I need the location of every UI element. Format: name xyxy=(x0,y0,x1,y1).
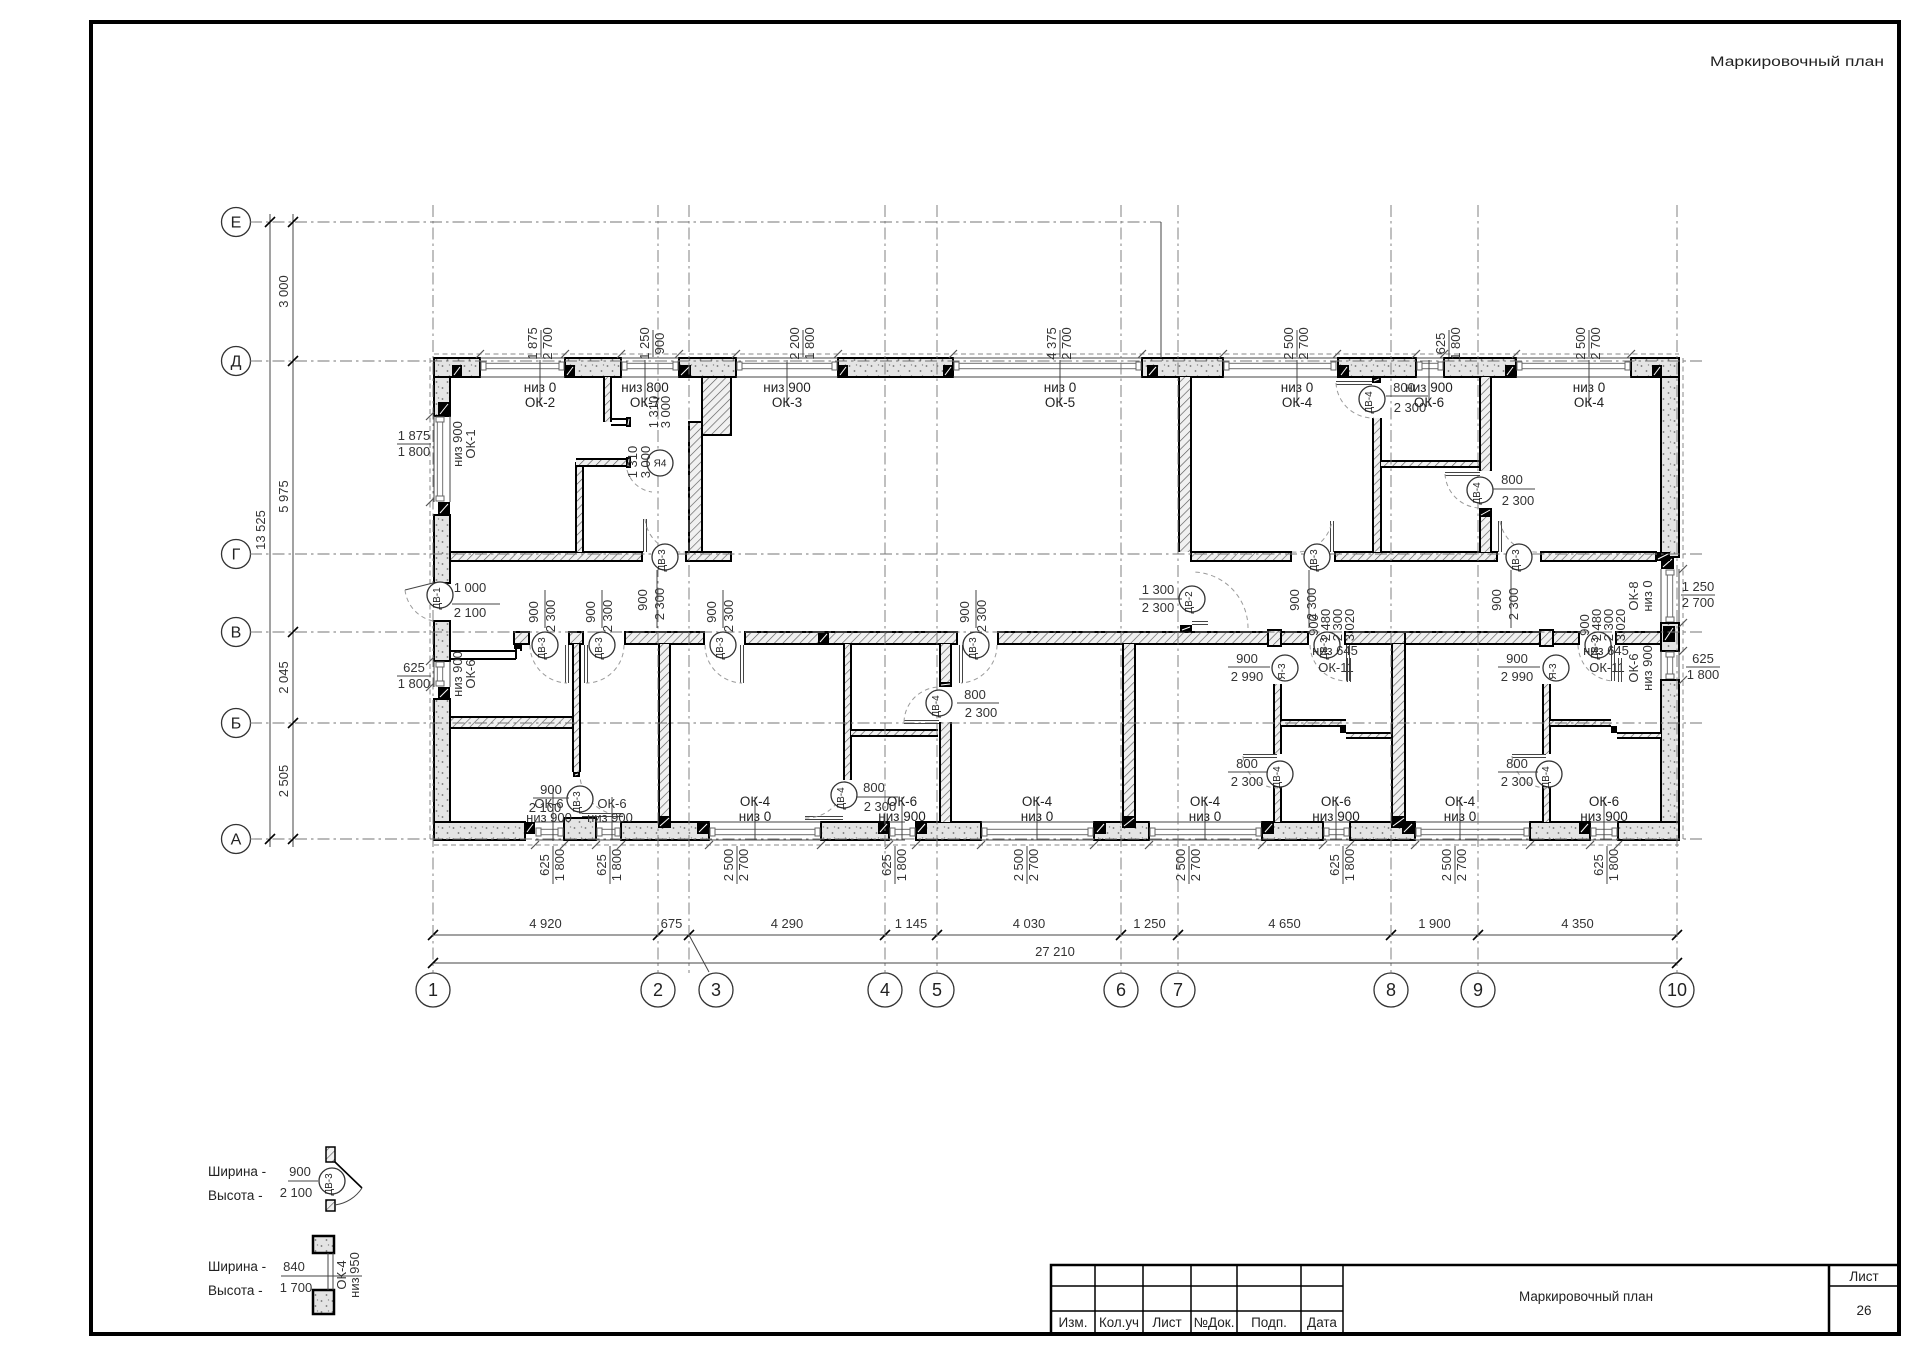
svg-text:ДВ-4: ДВ-4 xyxy=(836,787,847,810)
svg-text:900: 900 xyxy=(540,782,562,797)
svg-text:4 290: 4 290 xyxy=(771,916,804,931)
svg-text:Ширина -: Ширина - xyxy=(208,1164,266,1179)
svg-text:ОК-4: ОК-4 xyxy=(1574,395,1605,410)
svg-text:ДВ-3: ДВ-3 xyxy=(968,637,979,660)
svg-text:1 800: 1 800 xyxy=(1606,849,1621,882)
svg-text:низ 900: низ 900 xyxy=(1405,380,1452,395)
svg-text:ОК-5: ОК-5 xyxy=(1045,395,1075,410)
svg-text:Д: Д xyxy=(231,354,242,371)
svg-text:низ 900: низ 900 xyxy=(1640,645,1655,691)
svg-text:840: 840 xyxy=(283,1259,305,1274)
svg-text:2 500: 2 500 xyxy=(1573,327,1588,360)
svg-text:800: 800 xyxy=(964,687,986,702)
svg-text:2 300: 2 300 xyxy=(1231,774,1264,789)
svg-text:625: 625 xyxy=(1591,854,1606,876)
svg-text:низ 0: низ 0 xyxy=(1640,580,1655,611)
svg-text:625: 625 xyxy=(537,854,552,876)
svg-text:800: 800 xyxy=(863,780,885,795)
svg-text:800: 800 xyxy=(1236,756,1258,771)
svg-text:2 700: 2 700 xyxy=(736,849,751,882)
svg-text:№Док.: №Док. xyxy=(1194,1315,1235,1330)
svg-text:2 500: 2 500 xyxy=(1439,849,1454,882)
svg-text:900: 900 xyxy=(526,601,541,623)
svg-text:2 700: 2 700 xyxy=(1026,849,1041,882)
svg-text:13 525: 13 525 xyxy=(253,510,268,550)
svg-text:В: В xyxy=(231,625,242,642)
svg-text:2 500: 2 500 xyxy=(1011,849,1026,882)
svg-text:2 500: 2 500 xyxy=(721,849,736,882)
svg-text:низ 0: низ 0 xyxy=(524,380,556,395)
svg-text:26: 26 xyxy=(1856,1303,1871,1318)
svg-text:625: 625 xyxy=(594,854,609,876)
svg-text:Ширина -: Ширина - xyxy=(208,1259,266,1274)
svg-text:2 300: 2 300 xyxy=(1142,600,1175,615)
svg-text:1 000: 1 000 xyxy=(454,580,487,595)
svg-text:Высота -: Высота - xyxy=(208,1188,263,1203)
svg-text:ОК-6: ОК-6 xyxy=(1589,794,1619,809)
svg-text:ОК-4: ОК-4 xyxy=(1282,395,1313,410)
svg-text:5 975: 5 975 xyxy=(276,480,291,513)
svg-text:1: 1 xyxy=(428,980,438,1000)
svg-text:Кол.уч: Кол.уч xyxy=(1099,1315,1139,1330)
svg-text:ДВ-3: ДВ-3 xyxy=(1309,549,1320,572)
svg-text:ОК-8: ОК-8 xyxy=(1626,581,1641,610)
svg-text:2 100: 2 100 xyxy=(454,605,487,620)
svg-text:900: 900 xyxy=(1287,589,1302,611)
svg-text:4 375: 4 375 xyxy=(1044,327,1059,360)
svg-text:низ 0: низ 0 xyxy=(1573,380,1605,395)
svg-text:ОК-6: ОК-6 xyxy=(1414,395,1444,410)
svg-text:2 990: 2 990 xyxy=(1231,669,1264,684)
svg-text:ДВ-4: ДВ-4 xyxy=(1472,482,1483,505)
svg-text:ОК-1: ОК-1 xyxy=(463,429,478,458)
svg-text:Маркировочный план: Маркировочный план xyxy=(1710,54,1884,69)
svg-text:625: 625 xyxy=(1692,651,1714,666)
svg-text:ОК-4: ОК-4 xyxy=(740,794,771,809)
svg-text:1 800: 1 800 xyxy=(398,444,431,459)
svg-text:3 000: 3 000 xyxy=(658,396,673,429)
svg-text:1 145: 1 145 xyxy=(895,916,928,931)
svg-text:ОК-11: ОК-11 xyxy=(1589,660,1625,675)
svg-text:Лист: Лист xyxy=(1849,1269,1878,1284)
svg-text:ОК-6: ОК-6 xyxy=(1321,794,1351,809)
svg-text:10: 10 xyxy=(1667,980,1687,1000)
svg-text:ДВ-3: ДВ-3 xyxy=(594,637,605,660)
svg-text:низ 0: низ 0 xyxy=(1281,380,1313,395)
svg-text:8: 8 xyxy=(1386,980,1396,1000)
svg-text:1 800: 1 800 xyxy=(1687,667,1720,682)
svg-text:ДВ-4: ДВ-4 xyxy=(1272,766,1283,789)
svg-text:низ 900: низ 900 xyxy=(1312,809,1359,824)
svg-text:3: 3 xyxy=(711,980,721,1000)
svg-text:ОК-6: ОК-6 xyxy=(463,659,478,688)
svg-text:ОК-2: ОК-2 xyxy=(525,395,555,410)
svg-text:2 700: 2 700 xyxy=(1188,849,1203,882)
svg-text:1 800: 1 800 xyxy=(802,327,817,360)
svg-text:2 505: 2 505 xyxy=(276,765,291,798)
svg-text:1 800: 1 800 xyxy=(1342,849,1357,882)
svg-text:2 300: 2 300 xyxy=(652,588,667,621)
svg-text:2 700: 2 700 xyxy=(1296,327,1311,360)
svg-text:ОК-4: ОК-4 xyxy=(1445,794,1476,809)
svg-text:3 000: 3 000 xyxy=(276,275,291,308)
svg-text:2 100: 2 100 xyxy=(280,1185,313,1200)
svg-text:А: А xyxy=(231,832,242,849)
svg-text:ДВ-3: ДВ-3 xyxy=(715,637,726,660)
svg-text:2 700: 2 700 xyxy=(540,327,555,360)
svg-text:4 650: 4 650 xyxy=(1268,916,1301,931)
svg-text:ОК-4: ОК-4 xyxy=(1022,794,1053,809)
svg-text:625: 625 xyxy=(879,854,894,876)
svg-text:1 300: 1 300 xyxy=(1142,582,1175,597)
svg-text:800: 800 xyxy=(1501,472,1523,487)
svg-text:2 300: 2 300 xyxy=(965,705,998,720)
svg-text:625: 625 xyxy=(403,660,425,675)
svg-text:625: 625 xyxy=(1433,333,1448,355)
svg-text:900: 900 xyxy=(289,1164,311,1179)
svg-text:2 300: 2 300 xyxy=(1502,493,1535,508)
svg-text:2 300: 2 300 xyxy=(1501,774,1534,789)
svg-text:2 300: 2 300 xyxy=(1506,588,1521,621)
svg-text:1 250: 1 250 xyxy=(1133,916,1166,931)
svg-text:675: 675 xyxy=(661,916,683,931)
svg-text:1 800: 1 800 xyxy=(609,849,624,882)
svg-text:низ 0: низ 0 xyxy=(1444,809,1476,824)
svg-text:ДВ-4: ДВ-4 xyxy=(1541,766,1552,789)
svg-text:2: 2 xyxy=(653,980,663,1000)
svg-text:низ 0: низ 0 xyxy=(1021,809,1053,824)
svg-text:4 350: 4 350 xyxy=(1561,916,1594,931)
svg-text:2 700: 2 700 xyxy=(1588,327,1603,360)
svg-text:Лист: Лист xyxy=(1152,1315,1181,1330)
svg-text:низ 0: низ 0 xyxy=(1044,380,1076,395)
svg-text:3 020: 3 020 xyxy=(1613,609,1628,642)
svg-text:низ 645: низ 645 xyxy=(1312,643,1358,658)
svg-text:1 875: 1 875 xyxy=(398,428,431,443)
svg-text:3 000: 3 000 xyxy=(638,446,653,479)
svg-text:900: 900 xyxy=(583,601,598,623)
svg-text:низ 900: низ 900 xyxy=(1580,809,1627,824)
svg-text:ОК-7: ОК-7 xyxy=(630,395,660,410)
svg-text:низ 0: низ 0 xyxy=(1189,809,1221,824)
svg-text:низ 0: низ 0 xyxy=(739,809,771,824)
svg-text:Высота -: Высота - xyxy=(208,1283,263,1298)
svg-text:2 700: 2 700 xyxy=(1454,849,1469,882)
svg-text:5: 5 xyxy=(932,980,942,1000)
svg-text:2 500: 2 500 xyxy=(1281,327,1296,360)
svg-text:9: 9 xyxy=(1473,980,1483,1000)
svg-text:900: 900 xyxy=(652,333,667,355)
svg-text:625: 625 xyxy=(1327,854,1342,876)
svg-text:900: 900 xyxy=(635,589,650,611)
svg-text:Б: Б xyxy=(231,716,242,733)
svg-text:900: 900 xyxy=(1236,651,1258,666)
svg-text:1 800: 1 800 xyxy=(1448,327,1463,360)
svg-text:27 210: 27 210 xyxy=(1035,944,1075,959)
svg-text:4 030: 4 030 xyxy=(1013,916,1046,931)
svg-text:низ 900: низ 900 xyxy=(878,809,925,824)
svg-text:ДВ-3: ДВ-3 xyxy=(537,637,548,660)
svg-text:ОК-6: ОК-6 xyxy=(887,794,917,809)
svg-text:1 250: 1 250 xyxy=(637,327,652,360)
svg-text:7: 7 xyxy=(1173,980,1183,1000)
svg-text:Я-3: Я-3 xyxy=(1277,663,1288,680)
svg-text:1 800: 1 800 xyxy=(398,676,431,691)
svg-text:ДВ-3: ДВ-3 xyxy=(1511,549,1522,572)
svg-text:Я-3: Я-3 xyxy=(1548,663,1559,680)
svg-text:ДВ-4: ДВ-4 xyxy=(931,695,942,718)
svg-text:ДВ-3: ДВ-3 xyxy=(324,1173,335,1196)
svg-text:1 800: 1 800 xyxy=(894,849,909,882)
svg-text:Изм.: Изм. xyxy=(1059,1315,1088,1330)
svg-text:ОК-3: ОК-3 xyxy=(772,395,802,410)
svg-text:2 700: 2 700 xyxy=(1682,595,1715,610)
svg-text:4: 4 xyxy=(880,980,890,1000)
svg-text:1 250: 1 250 xyxy=(1682,579,1715,594)
svg-text:низ 800: низ 800 xyxy=(621,380,668,395)
svg-text:Дата: Дата xyxy=(1307,1315,1337,1330)
svg-text:ДВ-2: ДВ-2 xyxy=(1184,591,1195,614)
svg-text:900: 900 xyxy=(704,601,719,623)
svg-text:Подп.: Подп. xyxy=(1251,1315,1287,1330)
svg-text:низ 900: низ 900 xyxy=(763,380,810,395)
svg-text:900: 900 xyxy=(1489,589,1504,611)
svg-text:1 900: 1 900 xyxy=(1418,916,1451,931)
svg-text:Маркировочный план: Маркировочный план xyxy=(1519,1289,1653,1304)
svg-text:900: 900 xyxy=(957,601,972,623)
svg-text:800: 800 xyxy=(1506,756,1528,771)
svg-text:ДВ-3: ДВ-3 xyxy=(657,549,668,572)
svg-text:Г: Г xyxy=(232,547,241,564)
svg-text:2 990: 2 990 xyxy=(1501,669,1534,684)
svg-text:2 045: 2 045 xyxy=(276,661,291,694)
svg-text:ДВ-1: ДВ-1 xyxy=(432,587,443,610)
svg-text:ОК-11: ОК-11 xyxy=(1318,660,1354,675)
svg-text:1 800: 1 800 xyxy=(552,849,567,882)
svg-text:низ 645: низ 645 xyxy=(1583,643,1629,658)
svg-text:ДВ-3: ДВ-3 xyxy=(572,791,583,814)
svg-text:ОК-6: ОК-6 xyxy=(1626,653,1641,682)
svg-text:4 920: 4 920 xyxy=(529,916,562,931)
svg-text:1 875: 1 875 xyxy=(525,327,540,360)
svg-text:ОК-4: ОК-4 xyxy=(1190,794,1221,809)
svg-text:низ 950: низ 950 xyxy=(347,1252,362,1298)
svg-text:3 020: 3 020 xyxy=(1342,609,1357,642)
svg-text:низ 900: низ 900 xyxy=(587,810,633,825)
svg-text:900: 900 xyxy=(1506,651,1528,666)
svg-text:2 200: 2 200 xyxy=(787,327,802,360)
svg-text:Я4: Я4 xyxy=(654,459,667,470)
svg-text:1 700: 1 700 xyxy=(280,1280,313,1295)
svg-text:2 700: 2 700 xyxy=(1059,327,1074,360)
svg-text:2 500: 2 500 xyxy=(1173,849,1188,882)
svg-text:Е: Е xyxy=(231,215,242,232)
svg-text:6: 6 xyxy=(1116,980,1126,1000)
svg-text:низ 900: низ 900 xyxy=(526,810,572,825)
svg-text:ДВ-4: ДВ-4 xyxy=(1364,391,1375,414)
